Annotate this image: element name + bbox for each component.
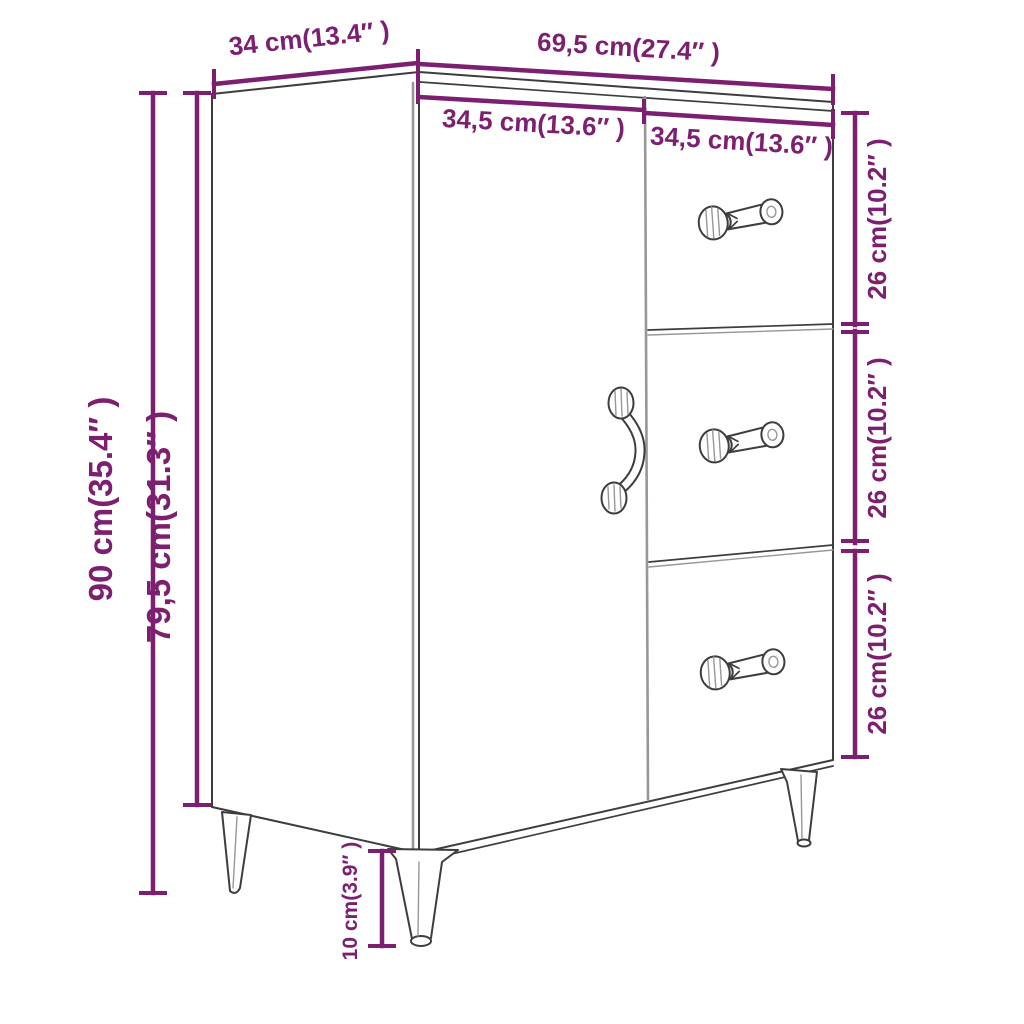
front-right-leg	[781, 769, 817, 844]
front-left-leg-seam	[418, 862, 419, 936]
drawer-2-handle	[698, 421, 786, 464]
drawer-separation-2	[649, 545, 833, 562]
total-height-label: 90 cm(35.4″ )	[82, 397, 119, 602]
cabinet-outline	[212, 72, 833, 861]
drawer1-height-label: 26 cm(10.2″ )	[862, 138, 892, 299]
diagram-canvas: 34 cm(13.4″ ) 69,5 cm(27.4″ ) 34,5 cm(13…	[0, 0, 1024, 1024]
drawer-3-handle	[699, 648, 787, 691]
handles	[602, 198, 787, 691]
leg-height-label: 10 cm(3.9″ )	[339, 842, 362, 961]
width-label: 69,5 cm(27.4″ )	[536, 26, 721, 67]
drawer2-height-label: 26 cm(10.2″ )	[862, 357, 892, 518]
cabinet-legs	[222, 769, 817, 946]
front-left-leg	[388, 849, 458, 944]
drawer-separation-2b	[649, 550, 833, 567]
dimension-labels: 34 cm(13.4″ ) 69,5 cm(27.4″ ) 34,5 cm(13…	[82, 15, 892, 961]
front-left-leg-foot	[411, 936, 431, 946]
drawer-1-handle	[697, 198, 785, 241]
depth-label: 34 cm(13.4″ )	[227, 15, 391, 62]
front-right-leg-seam	[801, 775, 802, 838]
base-band-line	[421, 766, 833, 861]
front-bottom-edge	[419, 760, 833, 853]
depth-dim-line	[214, 63, 418, 84]
door-handle	[602, 388, 641, 514]
body-height-label: 79,5 cm(31.3″ )	[140, 411, 177, 643]
drawer-separation-1	[648, 324, 833, 330]
front-right-leg-foot	[798, 840, 811, 847]
dimension-diagram: 34 cm(13.4″ ) 69,5 cm(27.4″ ) 34,5 cm(13…	[0, 0, 1024, 1024]
drawer-width-label: 34,5 cm(13.6″ )	[649, 120, 834, 161]
drawer3-height-label: 26 cm(10.2″ )	[862, 573, 892, 734]
dimension-lines	[141, 51, 867, 946]
